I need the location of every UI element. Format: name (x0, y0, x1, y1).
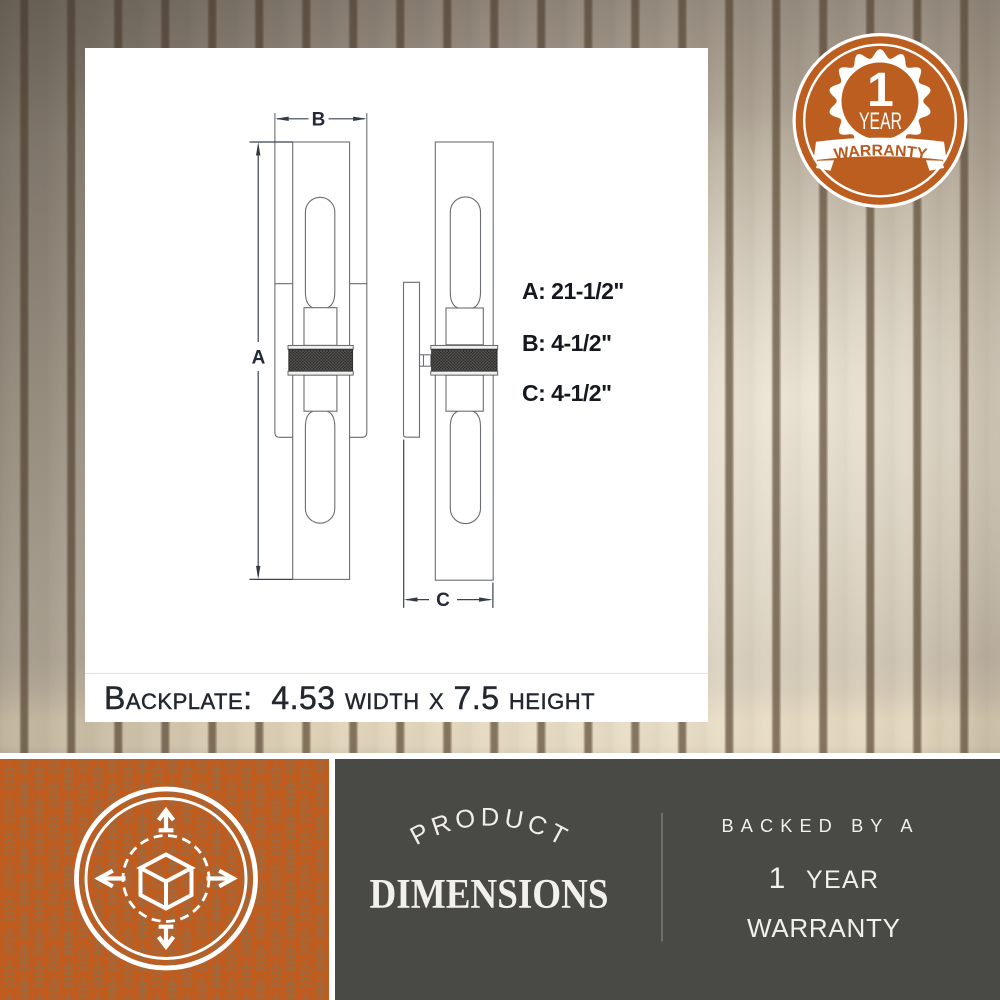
svg-text:WARRANTY: WARRANTY (747, 913, 900, 943)
svg-text:B: B (312, 109, 326, 130)
svg-text:B: 4-1/2": B: 4-1/2" (522, 330, 612, 356)
svg-text:A: A (252, 348, 266, 369)
svg-text:YEAR: YEAR (859, 108, 902, 135)
svg-text:C: C (436, 590, 450, 611)
svg-text:A: 21-1/2": A: 21-1/2" (522, 278, 624, 304)
svg-text:C: 4-1/2": C: 4-1/2" (522, 380, 612, 406)
svg-text:BACKED BY A: BACKED BY A (722, 816, 914, 836)
svg-text:DIMENSIONS: DIMENSIONS (370, 871, 609, 918)
svg-text:PRODUCT: PRODUCT (406, 803, 572, 850)
svg-text:YEAR: YEAR (806, 866, 878, 894)
svg-text:1: 1 (769, 862, 786, 895)
